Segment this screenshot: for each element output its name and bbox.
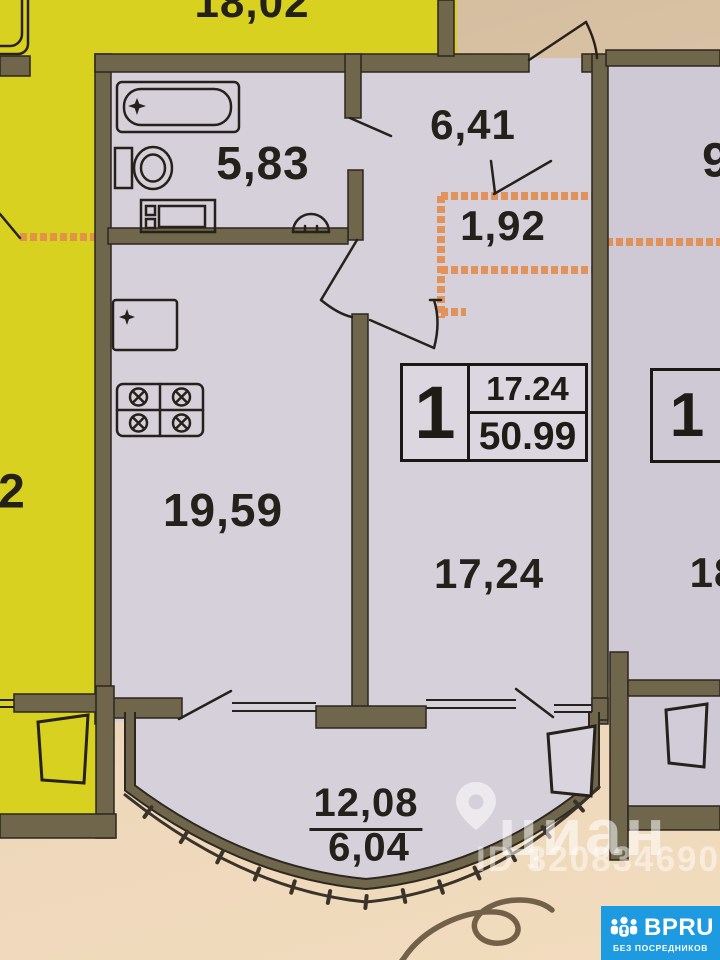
total-area-value: 50.99	[470, 414, 585, 459]
bathroom-area-label: 5,83	[216, 136, 310, 190]
room-area-label: 17,24	[434, 550, 544, 598]
hallway-area-label: 6,41	[430, 101, 516, 149]
floorplan-page: 18,02 5,83 6,41 1,92 19,59 17,24 12,08 6…	[0, 0, 720, 960]
left-unit-window	[38, 715, 88, 783]
left-unit-top-room-area-label: 18,02	[194, 0, 309, 28]
handwritten-scribble	[398, 900, 552, 960]
balcony-area-counted-label: 6,04	[328, 826, 410, 871]
balcony-window-right	[548, 726, 595, 796]
living-area-value: 17.24	[470, 366, 585, 414]
watermark-listing-id: ID 320834690	[476, 840, 720, 880]
wardrobe-area-label: 1,92	[460, 202, 546, 250]
bpru-badge: BPRU БЕЗ ПОСРЕДНИКОВ	[601, 906, 720, 960]
right-unit-info-table: 1	[650, 368, 720, 463]
bpru-brand: BPRU	[644, 914, 714, 942]
left-unit-area-label: 2	[0, 465, 26, 520]
right-unit-window	[666, 704, 707, 767]
kitchen-area-label: 19,59	[163, 483, 283, 537]
bpru-tagline: БЕЗ ПОСРЕДНИКОВ	[613, 943, 708, 953]
right-unit-hall-area-label: 9	[702, 134, 720, 189]
right-unit-rooms-count: 1	[653, 371, 720, 460]
right-unit-room-area-label: 18	[690, 549, 720, 597]
apartment-info-table: 1 17.24 50.99	[400, 363, 588, 462]
rooms-count: 1	[403, 366, 470, 459]
people-icon	[607, 916, 641, 939]
balcony-area-full-label: 12,08	[309, 781, 422, 831]
